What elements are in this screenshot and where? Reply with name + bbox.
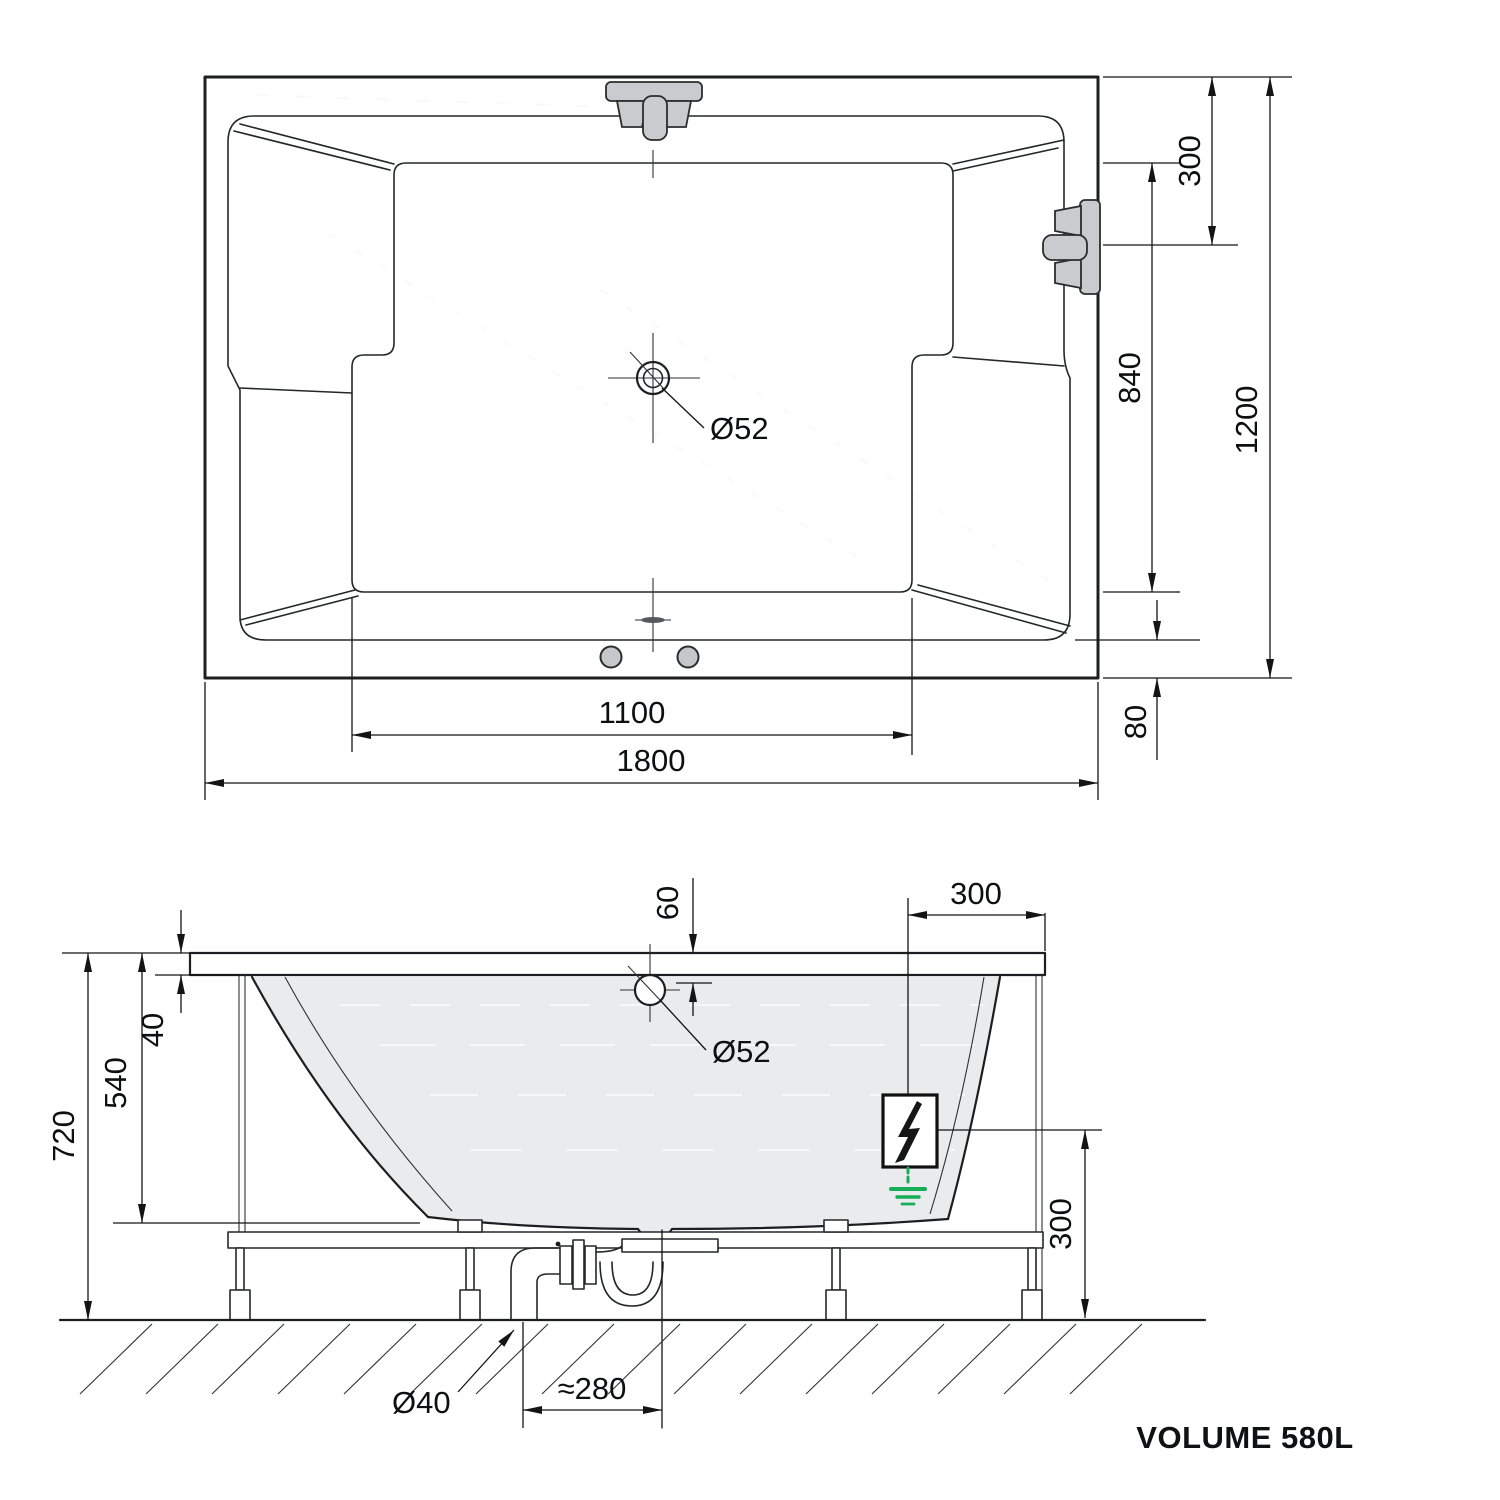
- dim-overall-width: 1200: [1229, 386, 1264, 455]
- dim-trap-offset: ≈280: [558, 1371, 627, 1406]
- plan-view: Ø52: [205, 77, 1292, 800]
- jet-hole-left: [601, 647, 622, 668]
- drain-diameter-label: Ø52: [710, 411, 769, 446]
- dim-total-height: 720: [46, 1110, 81, 1162]
- mixer-tap-right-icon: [1043, 200, 1100, 294]
- side-view: Ø52 720 540 40 60 300: [46, 876, 1205, 1428]
- dim-frame-height: 300: [1043, 1198, 1078, 1250]
- jet-hole-right: [678, 647, 699, 668]
- technical-drawing-bathtub: Ø52: [0, 0, 1500, 1500]
- dim-faucet-offset: 300: [1172, 135, 1207, 187]
- mixer-tap-top-icon: [606, 82, 702, 140]
- dim-floor-length: 1100: [599, 695, 666, 730]
- pipe-diameter-label: Ø40: [392, 1385, 451, 1420]
- dim-deck-width: 300: [950, 876, 1002, 911]
- drawing-canvas: Ø52: [0, 0, 1500, 1500]
- volume-label: VOLUME 580L: [1136, 1420, 1353, 1455]
- dim-floor-width: 840: [1112, 352, 1147, 404]
- ground-hatching: [60, 1320, 1205, 1394]
- rim-profile: [190, 953, 1045, 975]
- support-frame: [228, 1220, 1043, 1320]
- dim-basin-depth: 540: [98, 1057, 133, 1109]
- drain-diameter-label-side: Ø52: [712, 1034, 771, 1069]
- dim-rim-overhang: 80: [1118, 705, 1153, 739]
- dim-drain-offset: 60: [650, 886, 685, 920]
- frame-legs: [230, 1248, 1042, 1320]
- dim-rim-thickness: 40: [135, 1013, 170, 1047]
- drain-plan: Ø52: [608, 333, 769, 446]
- dim-overall-length: 1800: [617, 743, 686, 778]
